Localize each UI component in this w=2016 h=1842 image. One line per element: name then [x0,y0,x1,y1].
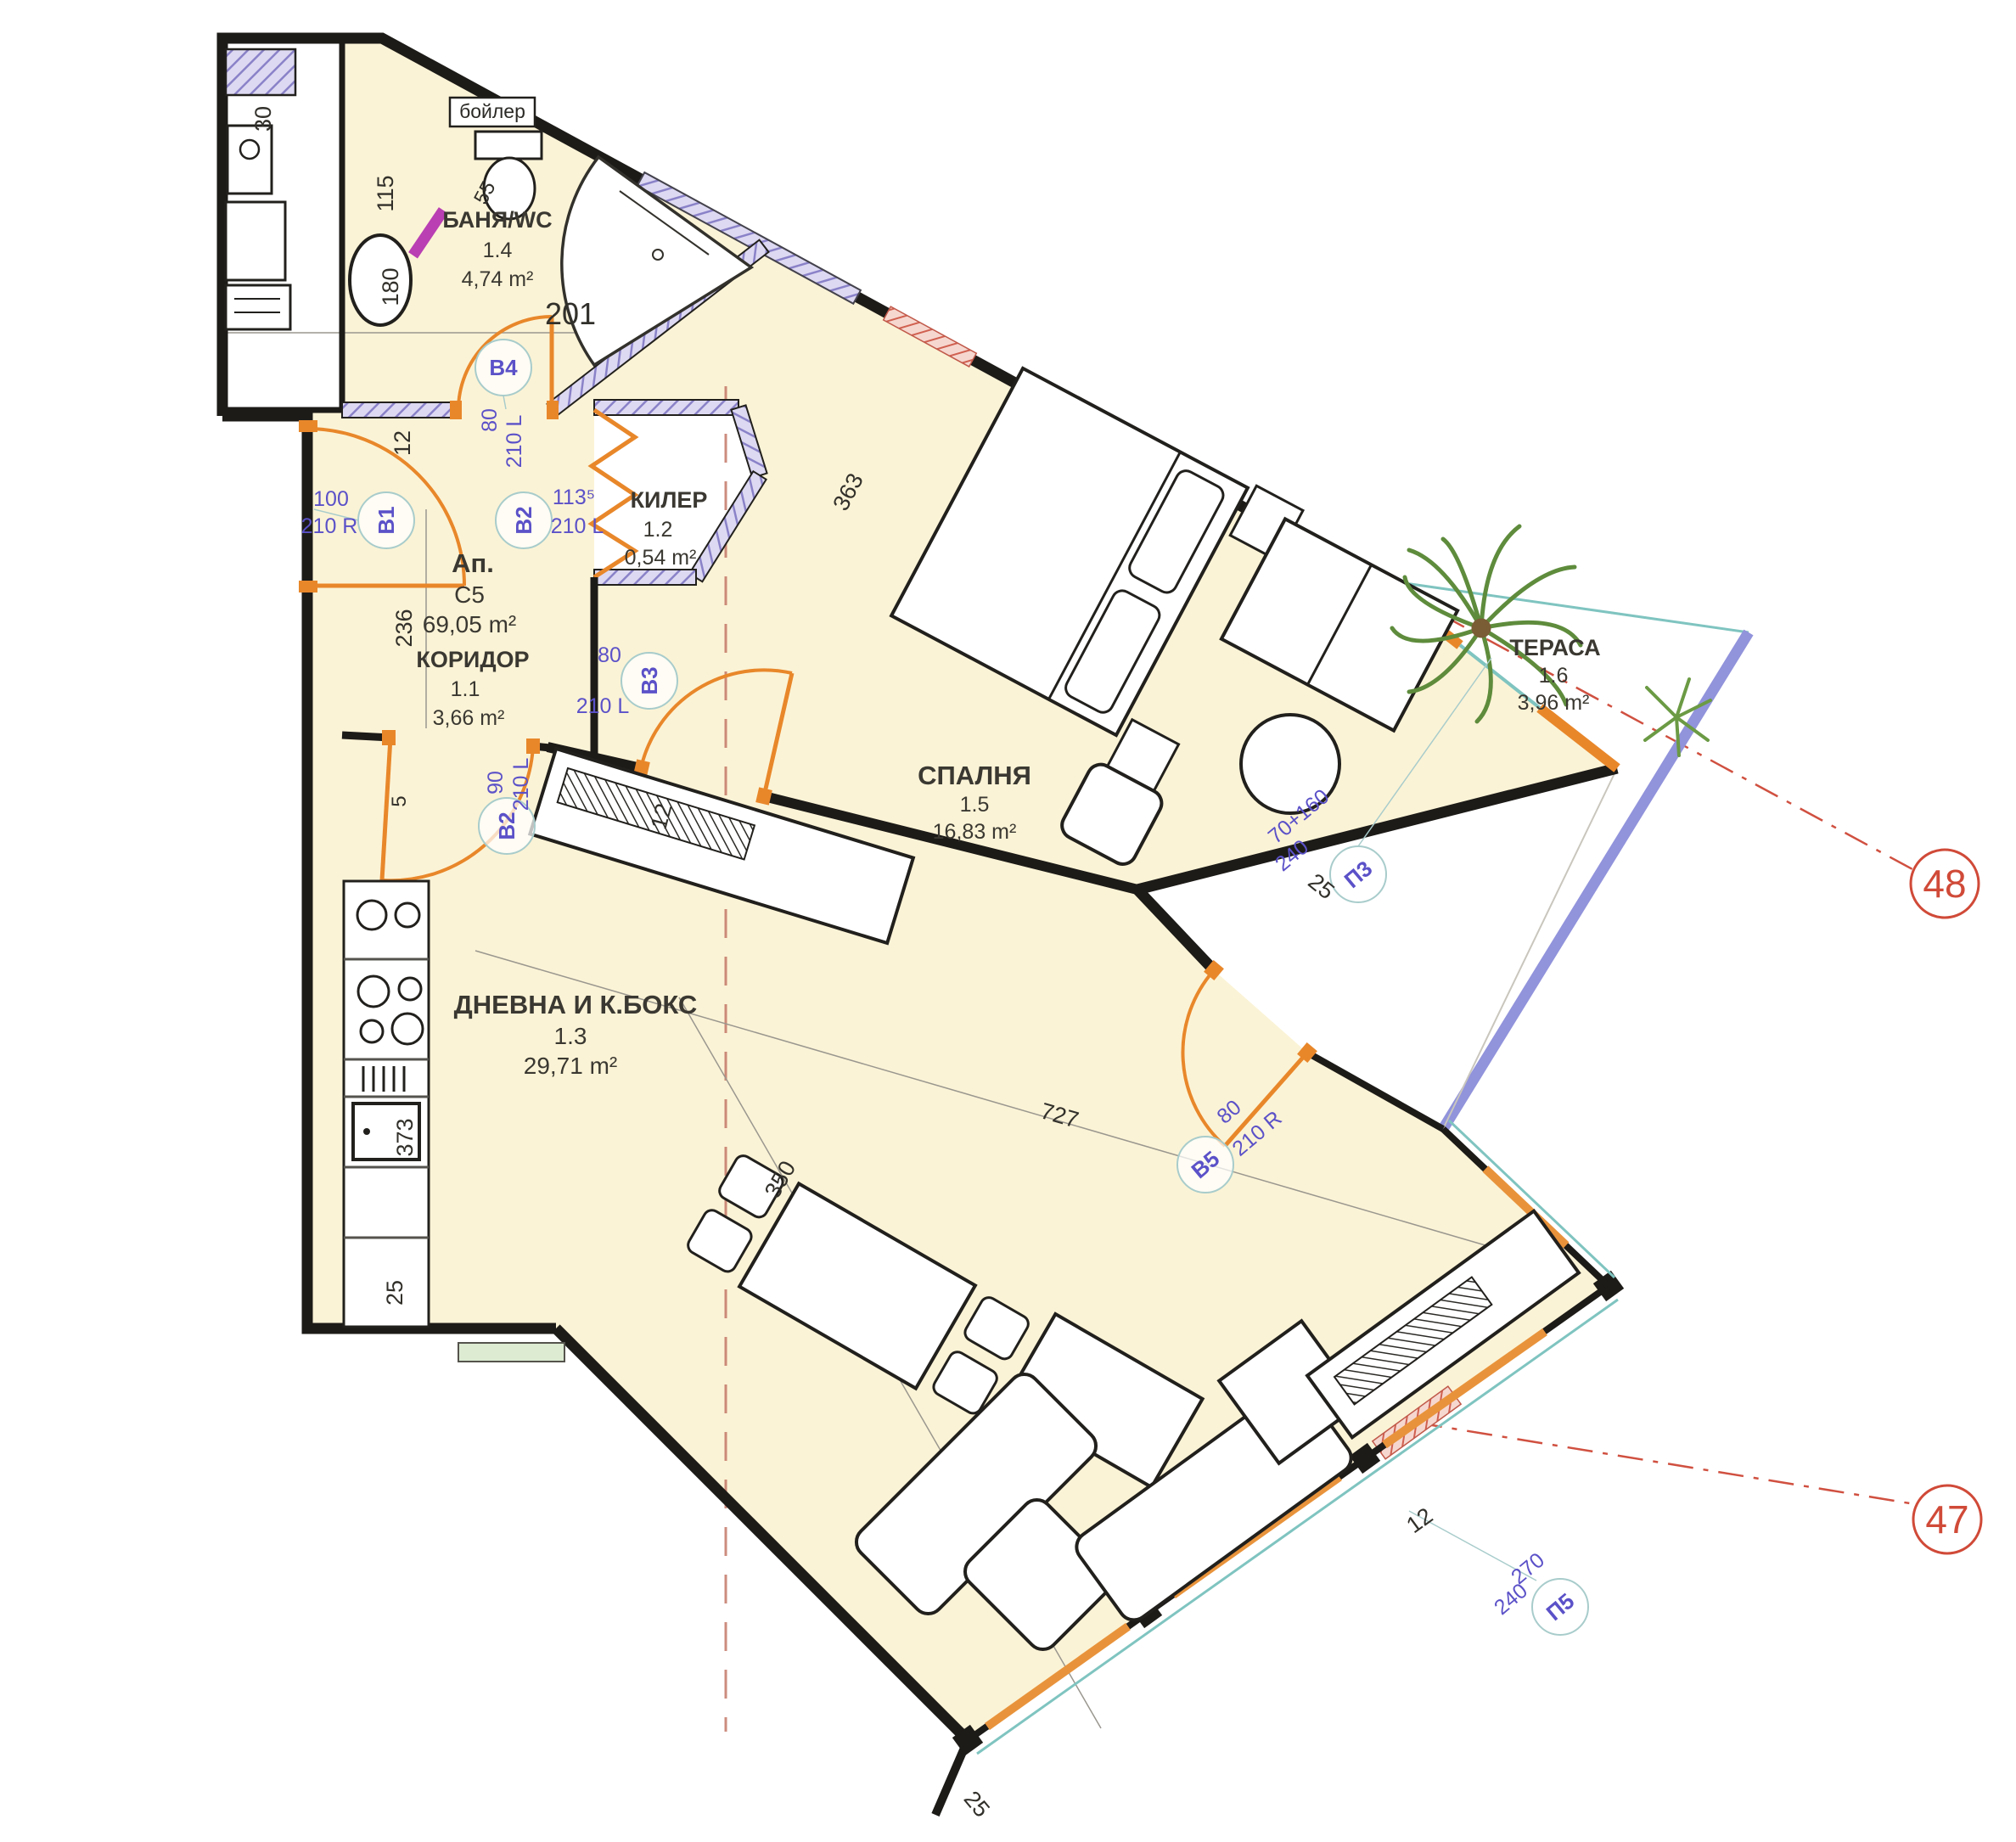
svg-text:113⁵: 113⁵ [553,486,595,509]
axis-48-label: 48 [1923,862,1966,906]
axis-47-label: 47 [1925,1497,1968,1542]
svg-text:1.2: 1.2 [643,518,673,542]
svg-text:12: 12 [1401,1502,1437,1538]
svg-text:16,83 m²: 16,83 m² [933,820,1017,844]
svg-text:30: 30 [250,106,276,132]
svg-text:210 L: 210 L [503,415,526,469]
svg-text:1.6: 1.6 [1539,664,1569,688]
axis-48: 48 [1911,850,1979,918]
terrace-walkway-edge [1443,768,1617,1129]
svg-text:210 L: 210 L [576,694,630,718]
svg-text:80: 80 [598,643,621,667]
svg-text:69,05 m²: 69,05 m² [423,611,517,637]
svg-text:210 L: 210 L [509,758,533,811]
svg-text:1.5: 1.5 [960,793,990,817]
svg-text:100: 100 [313,487,349,511]
svg-text:180: 180 [378,267,403,306]
neighbour-window [458,1343,564,1362]
svg-text:210 L: 210 L [551,514,604,538]
washing-machine [227,126,272,194]
svg-text:0,54 m²: 0,54 m² [625,546,697,570]
kitchen-counter [344,881,429,1327]
svg-text:СПАЛНЯ: СПАЛНЯ [918,761,1031,790]
floorplan-svg: бойлер [0,0,2016,1842]
svg-text:B2: B2 [511,506,536,534]
svg-text:115: 115 [373,175,398,211]
svg-text:80: 80 [478,408,502,432]
svg-text:B1: B1 [373,506,399,534]
svg-text:ТЕРАСА: ТЕРАСА [1509,635,1600,660]
axis-47: 47 [1913,1485,1981,1553]
svg-text:25: 25 [959,1786,995,1822]
svg-text:B3: B3 [637,666,662,694]
svg-text:29,71 m²: 29,71 m² [524,1053,618,1079]
svg-text:1.4: 1.4 [483,239,513,262]
bath-cabinet [226,202,290,329]
svg-text:ДНЕВНА И К.БОКС: ДНЕВНА И К.БОКС [454,990,698,1019]
boiler-box: бойлер [450,98,535,126]
svg-text:4,74 m²: 4,74 m² [462,267,534,291]
svg-text:B2: B2 [494,811,519,840]
axis-line-47 [1417,1423,1915,1504]
svg-text:210 R: 210 R [301,514,358,538]
boiler-label: бойлер [459,100,525,122]
svg-text:КИЛЕР: КИЛЕР [631,487,708,513]
tag-b2-living: B2 90 210 L [479,758,535,854]
svg-text:БАНЯ/WC: БАНЯ/WC [442,207,552,233]
tag-p5: П5 270 240 [1409,1511,1588,1635]
svg-text:КОРИДОР: КОРИДОР [416,647,529,672]
svg-text:C5: C5 [454,581,485,608]
svg-text:1.1: 1.1 [451,677,480,701]
duct-shaft [226,49,295,95]
svg-text:B4: B4 [489,355,518,380]
svg-text:3,96 m²: 3,96 m² [1518,691,1590,715]
svg-text:Ап.: Ап. [452,548,494,578]
svg-text:3,66 m²: 3,66 m² [433,706,505,730]
svg-text:5: 5 [388,795,411,806]
svg-text:236: 236 [391,609,417,647]
svg-text:25: 25 [382,1280,407,1306]
svg-text:12: 12 [390,430,415,456]
svg-text:373: 373 [392,1118,418,1156]
svg-text:1.3: 1.3 [554,1023,587,1049]
svg-text:90: 90 [484,771,508,795]
svg-text:201: 201 [545,296,596,331]
floorplan-page: бойлер [0,0,2016,1842]
